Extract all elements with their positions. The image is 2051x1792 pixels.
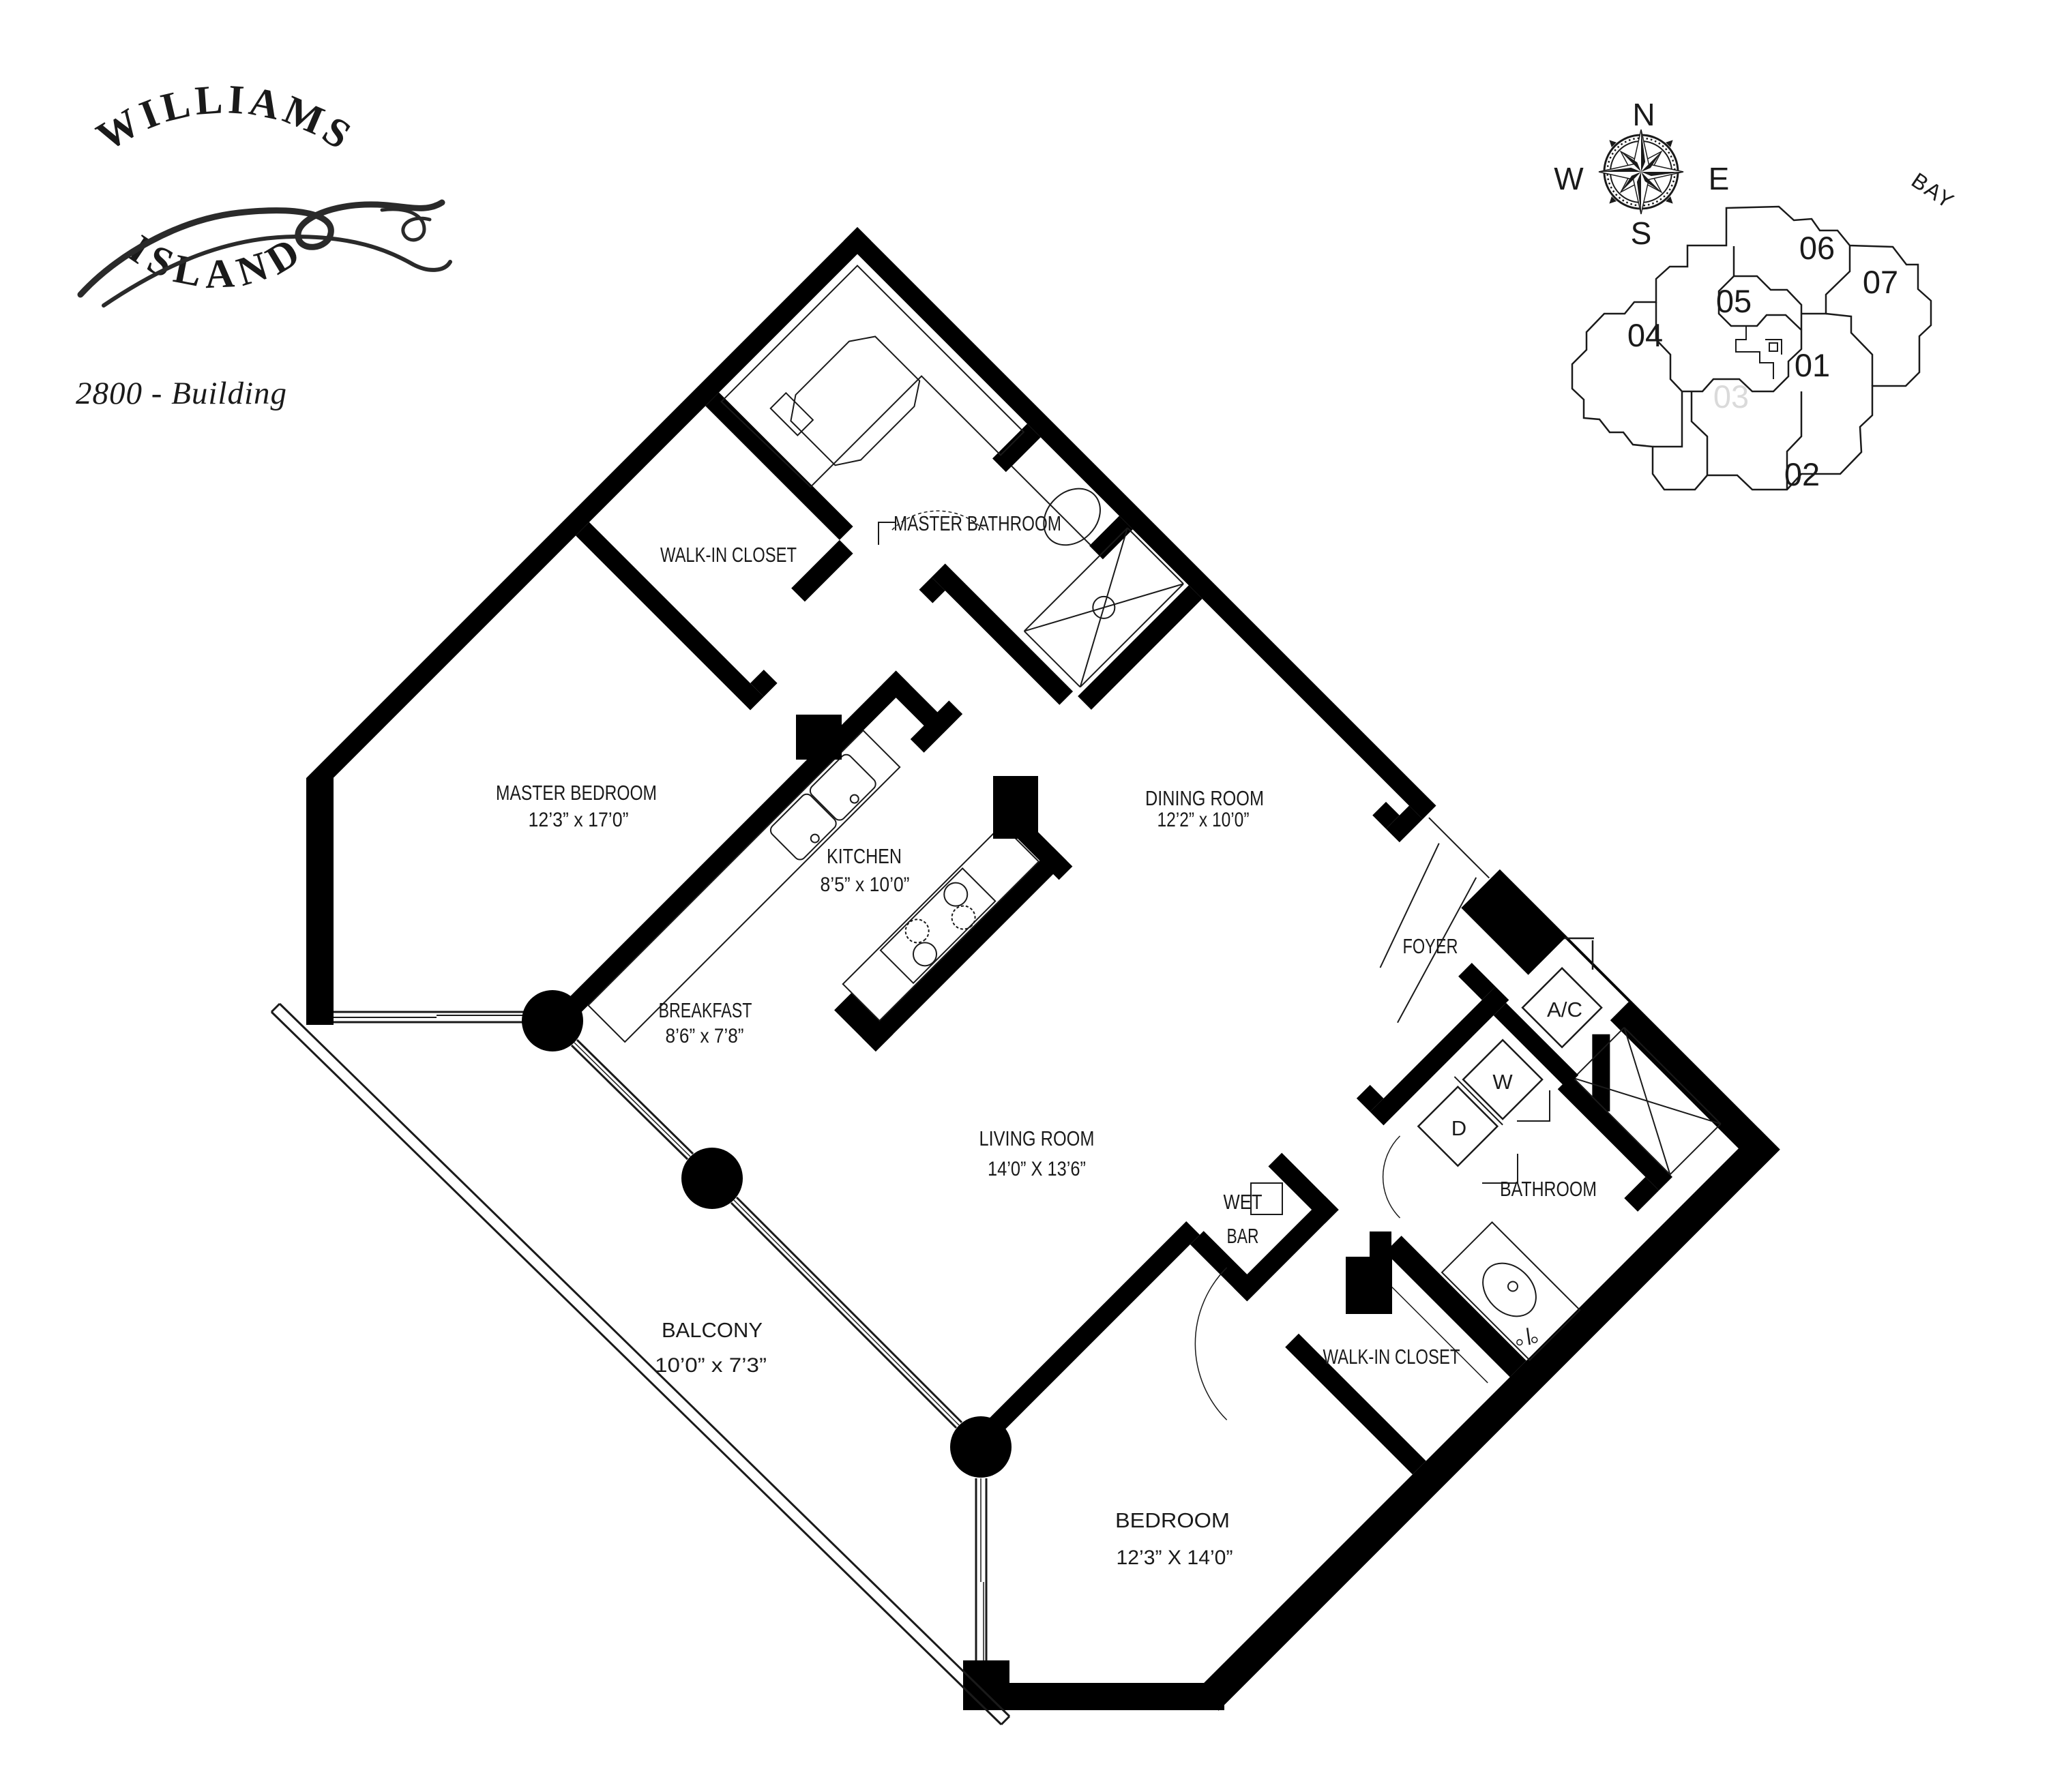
svg-text:BREAKFAST: BREAKFAST: [659, 998, 752, 1022]
svg-text:8’6” x 7’8”: 8’6” x 7’8”: [666, 1025, 744, 1047]
svg-text:2800 - Building: 2800 - Building: [76, 376, 287, 411]
svg-text:DINING ROOM: DINING ROOM: [1145, 786, 1264, 810]
svg-text:KITCHEN: KITCHEN: [827, 844, 902, 868]
svg-text:07: 07: [1863, 264, 1898, 300]
svg-text:14’0” X 13’6”: 14’0” X 13’6”: [988, 1158, 1086, 1180]
svg-text:10’0” x 7’3”: 10’0” x 7’3”: [655, 1354, 767, 1377]
svg-text:BEDROOM: BEDROOM: [1115, 1508, 1230, 1532]
svg-text:04: 04: [1627, 317, 1663, 353]
svg-text:BATHROOM: BATHROOM: [1500, 1177, 1597, 1201]
svg-text:06: 06: [1799, 230, 1835, 266]
svg-text:BAR: BAR: [1227, 1224, 1259, 1248]
svg-text:D: D: [1451, 1116, 1466, 1140]
svg-text:LIVING ROOM: LIVING ROOM: [979, 1126, 1095, 1150]
svg-text:W: W: [1492, 1070, 1513, 1094]
svg-text:N: N: [1632, 97, 1655, 132]
svg-text:01: 01: [1795, 347, 1830, 383]
svg-text:FOYER: FOYER: [1403, 934, 1458, 958]
svg-text:WALK-IN CLOSET: WALK-IN CLOSET: [660, 543, 797, 567]
svg-text:BALCONY: BALCONY: [662, 1318, 763, 1342]
svg-text:WET: WET: [1224, 1190, 1263, 1214]
svg-text:S: S: [1631, 215, 1652, 251]
svg-text:A/C: A/C: [1547, 998, 1582, 1021]
svg-text:05: 05: [1716, 283, 1752, 319]
svg-text:8’5” x 10’0”: 8’5” x 10’0”: [821, 873, 910, 896]
svg-text:MASTER BATHROOM: MASTER BATHROOM: [894, 511, 1061, 535]
svg-text:02: 02: [1784, 456, 1820, 492]
svg-text:E: E: [1709, 161, 1730, 196]
svg-text:12’3” x 17’0”: 12’3” x 17’0”: [529, 809, 629, 831]
svg-text:W: W: [1554, 161, 1584, 196]
svg-text:MASTER BEDROOM: MASTER BEDROOM: [496, 781, 657, 805]
svg-text:12’3” X 14’0”: 12’3” X 14’0”: [1117, 1547, 1233, 1569]
svg-text:WALK-IN CLOSET: WALK-IN CLOSET: [1323, 1345, 1460, 1369]
svg-text:03: 03: [1713, 378, 1749, 415]
svg-text:12’2” x 10’0”: 12’2” x 10’0”: [1157, 809, 1250, 831]
